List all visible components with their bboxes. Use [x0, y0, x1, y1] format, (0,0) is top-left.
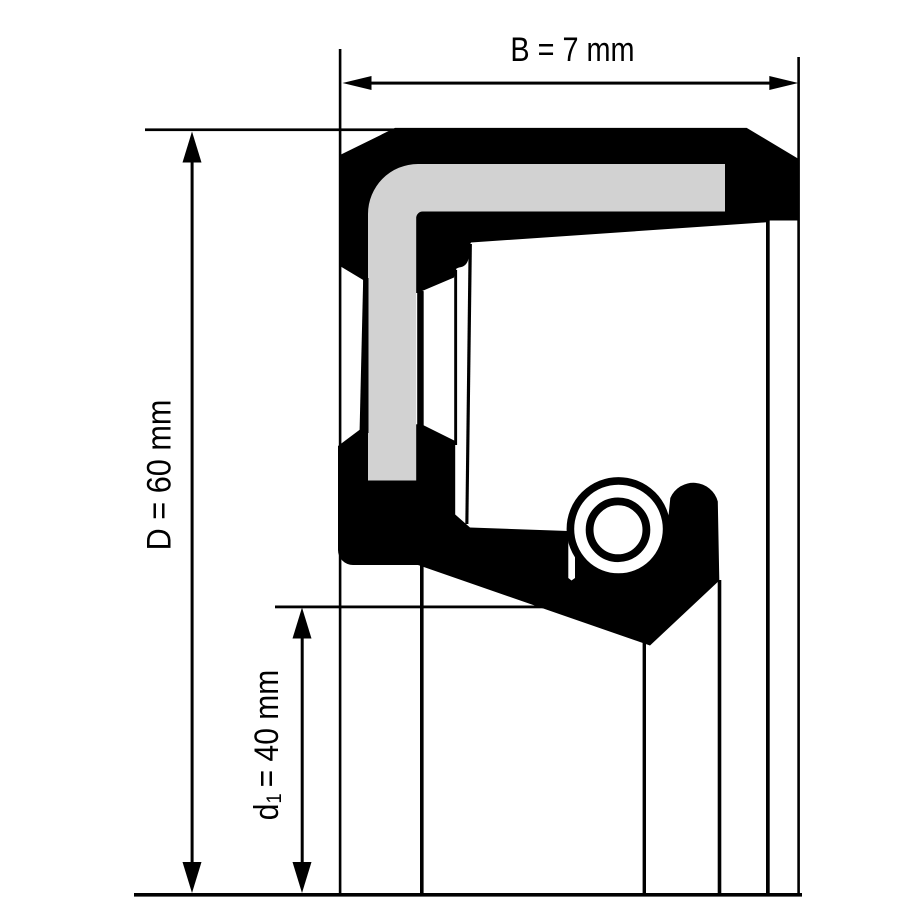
svg-text:B = 7 mm: B = 7 mm: [510, 30, 634, 69]
svg-text:D = 60 mm: D = 60 mm: [139, 400, 178, 551]
